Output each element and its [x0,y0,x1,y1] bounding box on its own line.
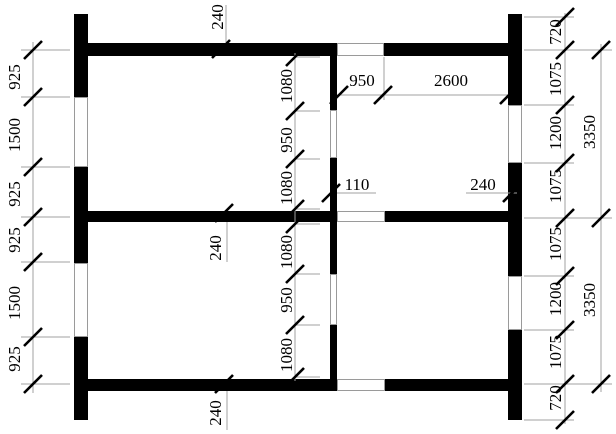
dim-950-room: 950 [349,71,375,90]
dim-3350-right-bottom: 3350 [580,283,599,317]
dim-240-top-wall: 240 [208,4,227,30]
dim-1200-right-1: 1200 [546,116,565,150]
dim-1200-right-2: 1200 [546,282,565,316]
dim-950-mid-1: 950 [277,127,296,153]
dim-1080-mid-2: 1080 [277,171,296,205]
architectural-floor-plan: 2409251500925925150092510809501080108095… [0,0,616,434]
door-partition-lower [331,275,337,325]
dim-240-right-wall: 240 [470,175,496,194]
window-top-wall [338,44,384,56]
dim-925-left-3: 925 [5,227,24,253]
dim-720-right-2: 720 [546,385,565,411]
window-right-upper [509,106,522,163]
opening-bottom-wall [338,380,385,391]
window-right-lower [509,277,522,330]
door-partition-upper [331,111,337,158]
dim-240-bottom-wall: 240 [206,400,225,426]
window-left-lower [75,264,88,337]
floor-plan-canvas: 2409251500925925150092510809501080108095… [0,0,616,434]
dim-1080-mid-3: 1080 [277,235,296,269]
dim-1080-mid-4: 1080 [277,338,296,372]
dim-1075-right-3: 1075 [546,227,565,261]
dim-1075-right-1: 1075 [546,62,565,96]
dim-1075-right-2: 1075 [546,169,565,203]
dim-925-left-4: 925 [5,346,24,372]
dim-240-middle-wall: 240 [206,235,225,261]
opening-middle-wall [338,212,385,222]
dim-1080-mid-1: 1080 [277,69,296,103]
dim-950-mid-2: 950 [277,287,296,313]
dim-1500-left-1: 1500 [5,118,24,152]
dim-2600-room: 2600 [434,71,468,90]
bottom-exterior-wall [74,379,522,391]
dim-720-right-1: 720 [546,19,565,45]
dim-1075-right-4: 1075 [546,335,565,369]
dim-110-partition: 110 [345,175,370,194]
dim-925-left-2: 925 [5,181,24,207]
dim-3350-right-top: 3350 [580,115,599,149]
window-left-upper [75,98,88,167]
dim-1500-left-2: 1500 [5,286,24,320]
dim-925-left-1: 925 [5,64,24,90]
